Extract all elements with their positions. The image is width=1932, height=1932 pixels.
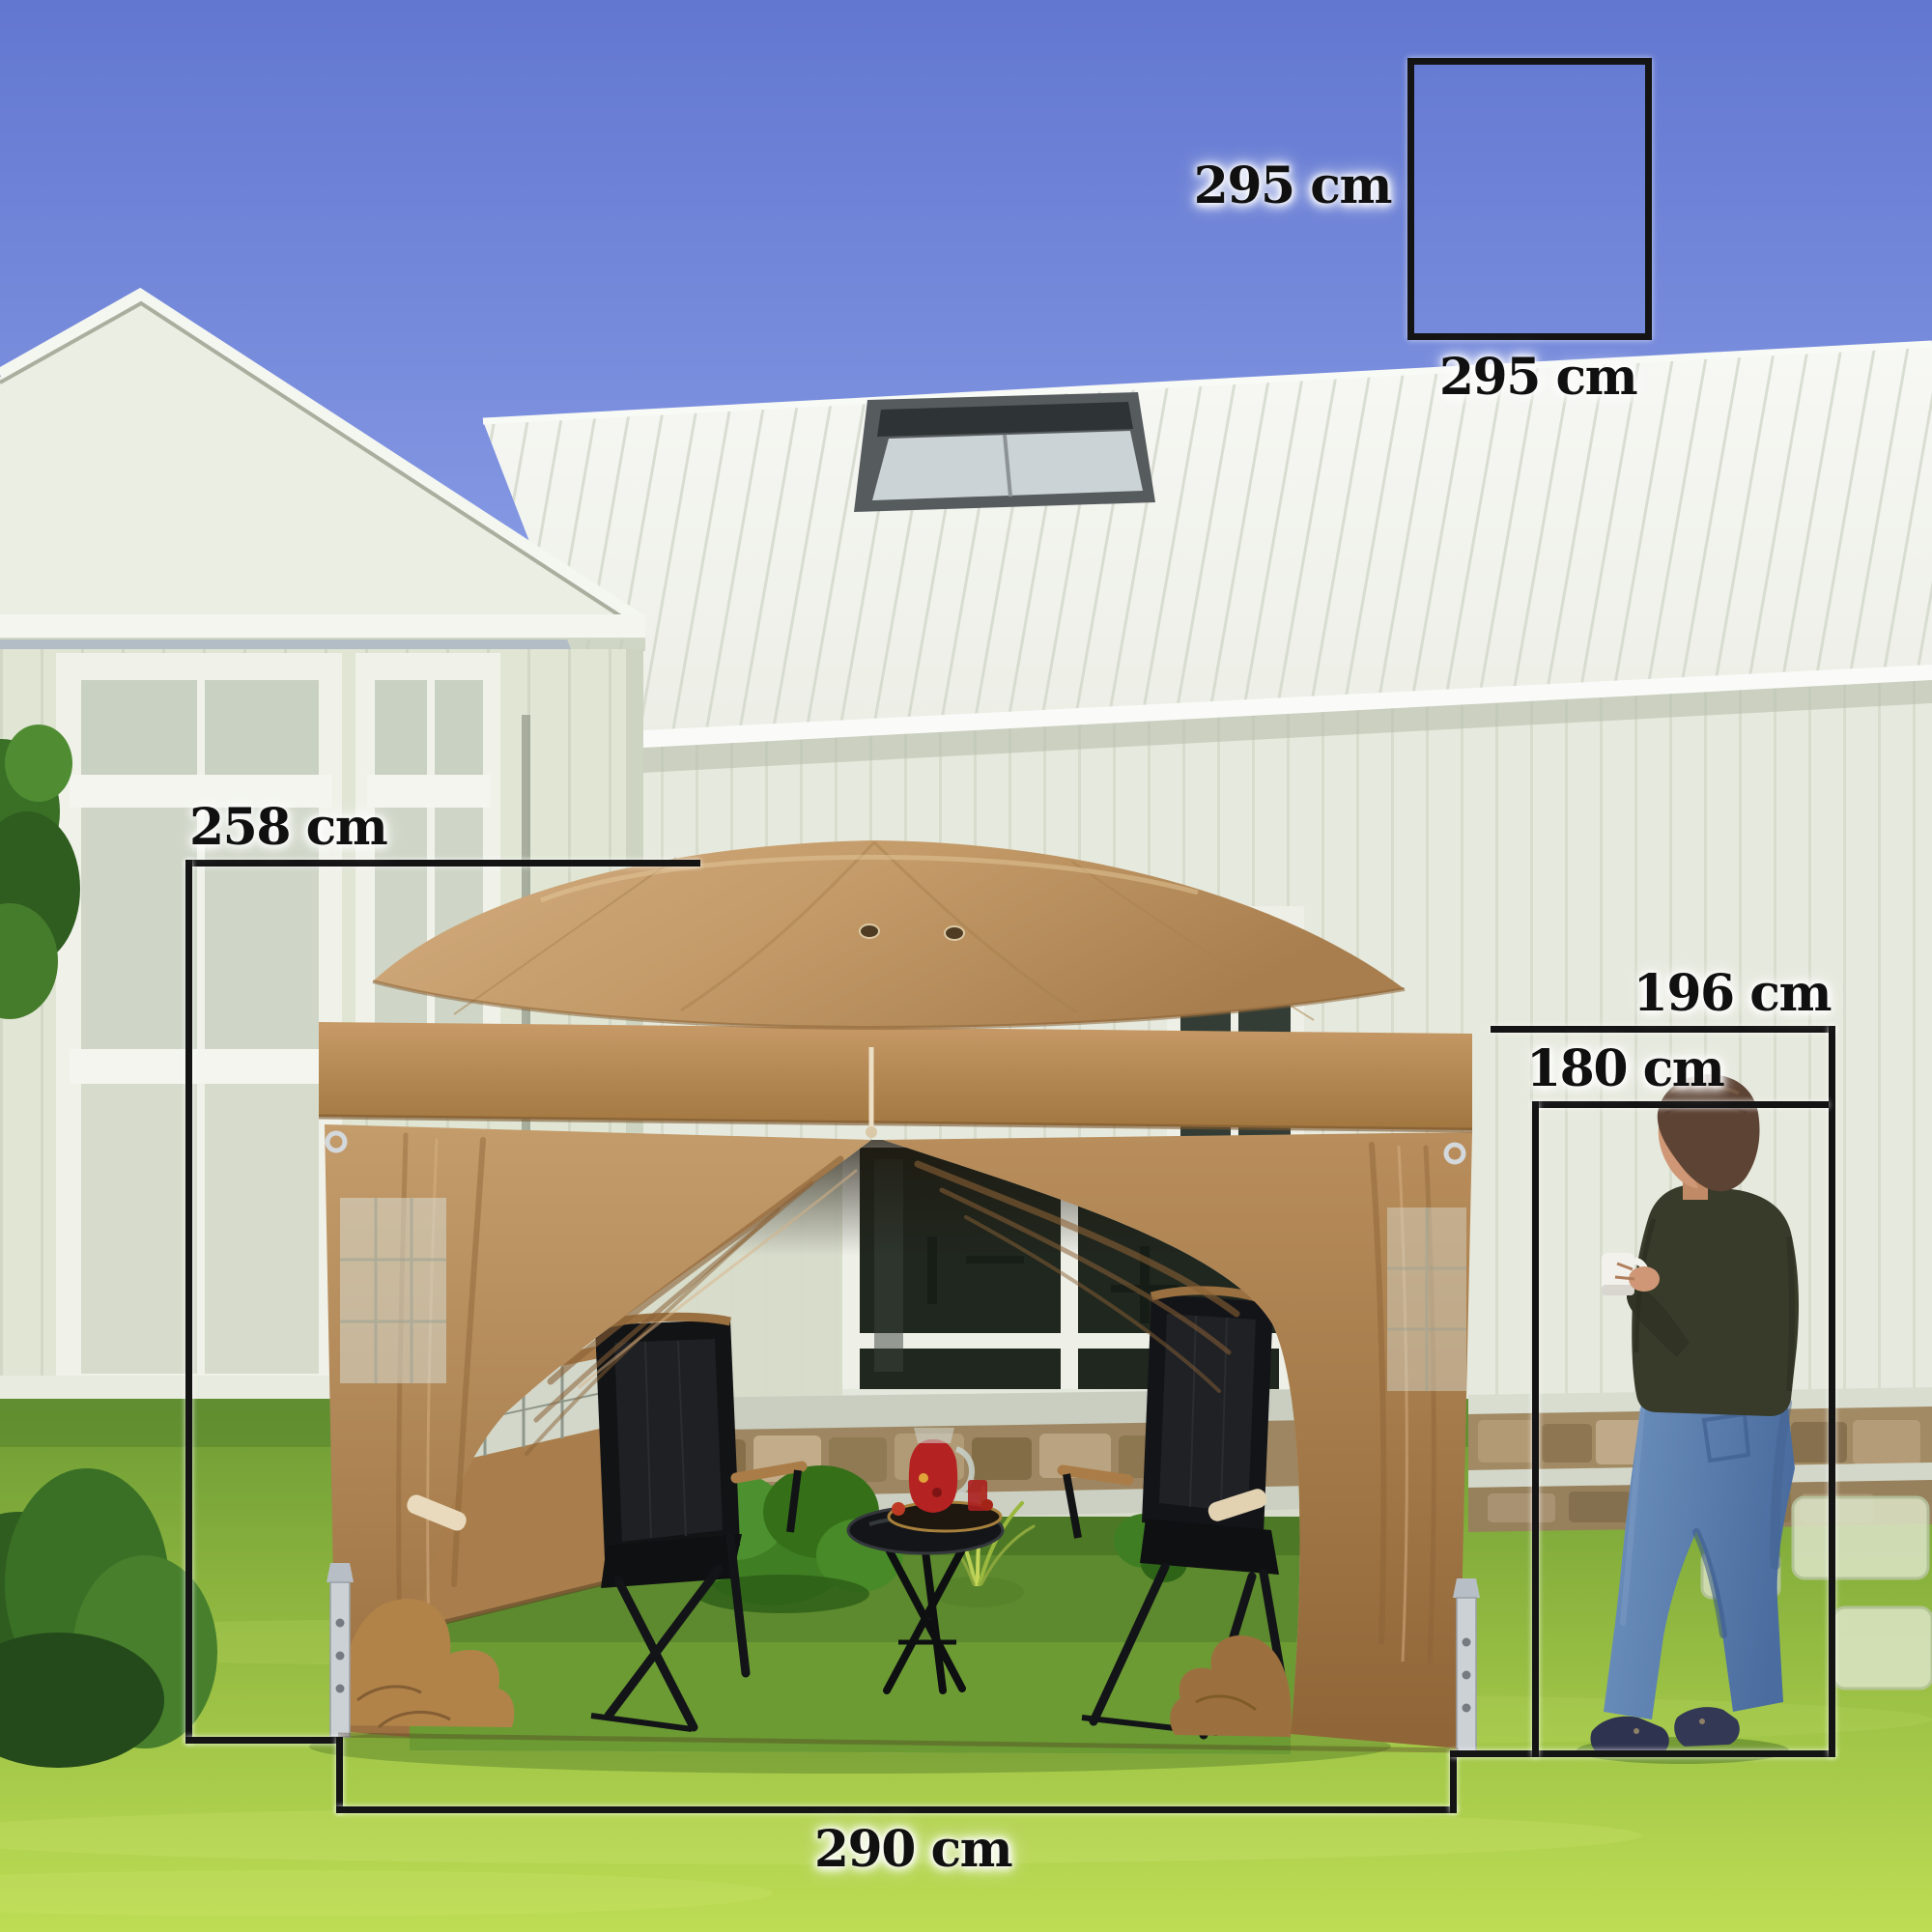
dim-label-square-bottom: 295 cm [1398, 348, 1678, 407]
sidewall-mesh-window-left [340, 1198, 446, 1383]
dim-label-wall-height: 196 cm [1550, 964, 1831, 1023]
dim-label-person-height: 180 cm [1526, 1039, 1723, 1098]
skylight-window [854, 392, 1155, 512]
dim-line-wall-height-top [1491, 1026, 1835, 1033]
gazebo-leg-front-right [1453, 1578, 1480, 1754]
gable-window-left [56, 653, 342, 1399]
dim-line-depth-bottom [185, 1737, 338, 1744]
gazebo [319, 840, 1480, 1768]
dim-line-depth-top [185, 860, 700, 867]
dim-line-step-vertical [336, 1737, 343, 1813]
footprint-square-outline [1407, 58, 1652, 340]
dim-line-depth-left [185, 860, 192, 1744]
dim-label-square-side: 295 cm [1111, 156, 1391, 215]
dim-label-front-width: 290 cm [773, 1820, 1053, 1879]
dim-line-person-height-left [1532, 1101, 1539, 1757]
dim-line-person-height-top [1532, 1101, 1829, 1108]
dim-line-wall-height-right [1829, 1026, 1835, 1757]
sweater [1632, 1184, 1799, 1416]
canopy-grommet [945, 926, 964, 940]
dim-line-front-width [336, 1806, 1457, 1813]
canopy-grommet [860, 924, 879, 938]
gazebo-product-dimension-image: 295 cm 295 cm 258 cm 290 cm 196 cm 180 c… [0, 0, 1932, 1932]
gazebo-leg-front-left [327, 1563, 354, 1737]
dim-line-front-width-right-vertical [1450, 1752, 1457, 1813]
dim-line-ground [1450, 1750, 1835, 1757]
dim-label-depth: 258 cm [189, 798, 386, 857]
